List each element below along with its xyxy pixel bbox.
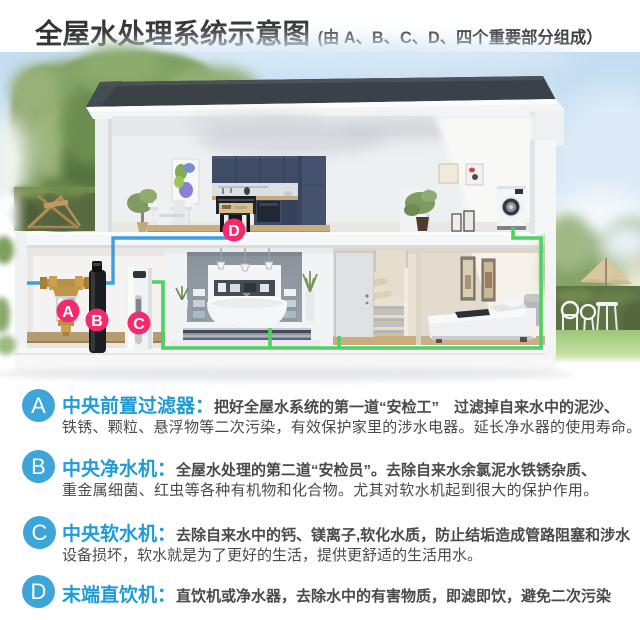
svg-text:A: A [62,304,74,321]
svg-text:D: D [228,223,240,240]
svg-text:B: B [91,313,103,330]
svg-text:C: C [133,316,145,333]
